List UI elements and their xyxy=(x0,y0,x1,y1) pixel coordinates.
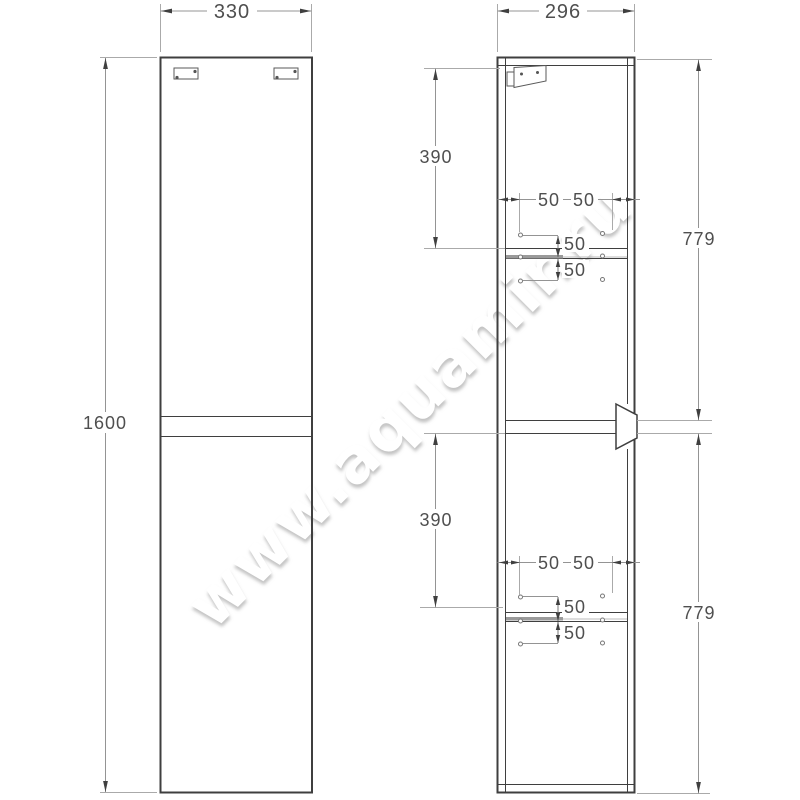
bracket-screw xyxy=(536,71,539,74)
dim-label-50: 50 xyxy=(564,623,586,643)
shelf-pin-hole xyxy=(519,642,523,646)
dim-label-50: 50 xyxy=(573,553,595,573)
hanger-screw xyxy=(275,76,278,79)
dim-label-779-upper: 779 xyxy=(682,229,715,249)
dim-front-width: 330 xyxy=(161,1,312,52)
shelf-pin-hole xyxy=(601,232,605,236)
wall-bracket-clip xyxy=(507,72,514,86)
arrowhead xyxy=(696,782,701,793)
shelf-pin-hole xyxy=(519,255,523,259)
dim-label-50: 50 xyxy=(573,190,595,210)
arrowhead xyxy=(433,69,438,80)
lower-shelf-edge xyxy=(506,617,563,621)
dim-label-50: 50 xyxy=(564,260,586,280)
dim-label-50: 50 xyxy=(538,553,560,573)
shelf-pin-hole xyxy=(519,595,523,599)
arrowhead xyxy=(103,58,108,69)
shelf-pin-hole xyxy=(601,594,605,598)
shelf-pin-hole xyxy=(519,279,523,283)
arrowhead xyxy=(556,622,560,630)
drawing-canvas: 330 296 1600 xyxy=(0,0,800,800)
dim-upper-door: 779 xyxy=(637,60,716,421)
side-view-outline xyxy=(498,58,635,793)
dim-lower-door: 779 xyxy=(637,434,716,794)
bracket-screw xyxy=(520,73,523,76)
arrowhead xyxy=(696,60,701,71)
arrowhead xyxy=(511,561,520,565)
arrowhead xyxy=(161,9,172,14)
arrowhead xyxy=(433,237,438,248)
arrowhead xyxy=(300,9,311,14)
arrowhead xyxy=(511,198,520,202)
dim-front-height: 1600 xyxy=(81,58,157,793)
shelf-pin-hole xyxy=(601,254,605,258)
arrowhead xyxy=(623,9,634,14)
arrowhead xyxy=(433,596,438,607)
hanger-screw xyxy=(175,76,178,79)
arrowhead xyxy=(612,561,621,565)
arrowhead xyxy=(556,635,560,643)
dim-label-330: 330 xyxy=(214,1,250,23)
dim-label-779-lower: 779 xyxy=(682,603,715,623)
dim-label-390-upper: 390 xyxy=(419,147,452,167)
arrowhead xyxy=(499,198,508,202)
dim-upper-section: 390 xyxy=(414,69,505,249)
front-view xyxy=(161,58,313,793)
dim-label-296: 296 xyxy=(545,1,581,23)
dim-side-depth: 296 xyxy=(498,1,635,52)
dim-lower-hole-insets: 50 50 xyxy=(498,553,641,595)
front-view-outline xyxy=(161,58,313,793)
shelf-pin-hole xyxy=(601,641,605,645)
arrowhead xyxy=(612,198,621,202)
arrowhead xyxy=(696,409,701,420)
shelf-pin-hole xyxy=(601,278,605,282)
shelf-pin-hole xyxy=(601,618,605,622)
arrowhead xyxy=(499,561,508,565)
arrowhead xyxy=(103,781,108,792)
dim-label-390-lower: 390 xyxy=(419,510,452,530)
technical-drawing: www.aquamir.ru xyxy=(0,0,800,800)
dim-label-50: 50 xyxy=(564,234,586,254)
arrowhead xyxy=(696,434,701,445)
side-view xyxy=(498,58,638,793)
wall-bracket xyxy=(514,66,546,88)
shelf-pin-hole xyxy=(519,233,523,237)
shelf-pin-holes xyxy=(519,232,605,647)
dim-label-50: 50 xyxy=(564,597,586,617)
dim-lower-section: 390 xyxy=(414,434,505,608)
dim-label-1600: 1600 xyxy=(83,413,127,433)
arrowhead xyxy=(556,236,560,244)
upper-shelf-edge xyxy=(506,255,563,259)
arrowhead xyxy=(556,259,560,267)
arrowhead xyxy=(556,597,560,605)
arrowhead xyxy=(556,272,560,280)
arrowhead xyxy=(433,434,438,445)
hanger-screw xyxy=(293,70,296,73)
shelf-pin-hole xyxy=(519,619,523,623)
hanger-screw xyxy=(193,70,196,73)
arrowhead xyxy=(498,9,509,14)
dim-upper-hole-insets: 50 50 xyxy=(498,190,641,232)
dim-label-50: 50 xyxy=(538,190,560,210)
